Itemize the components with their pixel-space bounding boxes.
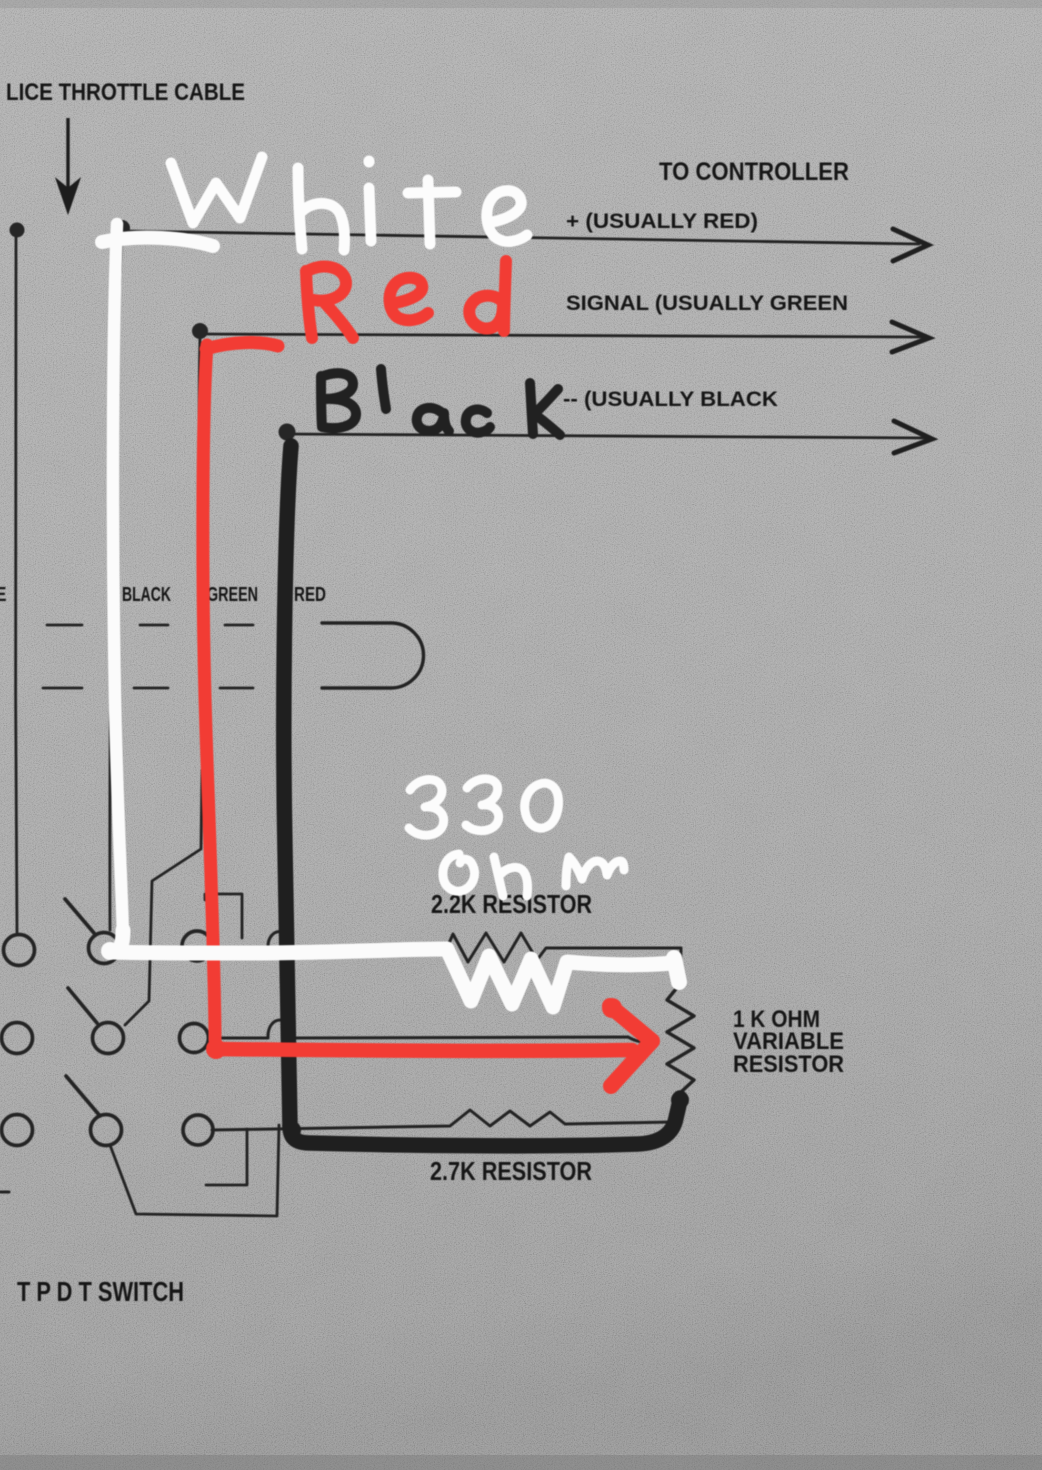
svg-text:BLACK: BLACK xyxy=(122,583,171,606)
svg-text:-- (USUALLY BLACK: -- (USUALLY BLACK xyxy=(563,388,778,411)
svg-text:RED: RED xyxy=(294,583,326,606)
svg-text:RESISTOR: RESISTOR xyxy=(733,1051,844,1078)
svg-text:+ (USUALLY RED): + (USUALLY RED) xyxy=(566,210,758,233)
svg-text:LICE THROTTLE CABLE: LICE THROTTLE CABLE xyxy=(6,79,245,106)
svg-text:2.7K RESISTOR: 2.7K RESISTOR xyxy=(430,1158,592,1186)
svg-text:E: E xyxy=(0,583,7,606)
svg-text:SIGNAL (USUALLY GREEN: SIGNAL (USUALLY GREEN xyxy=(566,292,848,315)
svg-text:T P D T SWITCH: T P D T SWITCH xyxy=(17,1276,184,1307)
svg-text:TO CONTROLLER: TO CONTROLLER xyxy=(659,158,849,186)
svg-text:GREEN: GREEN xyxy=(207,583,258,606)
